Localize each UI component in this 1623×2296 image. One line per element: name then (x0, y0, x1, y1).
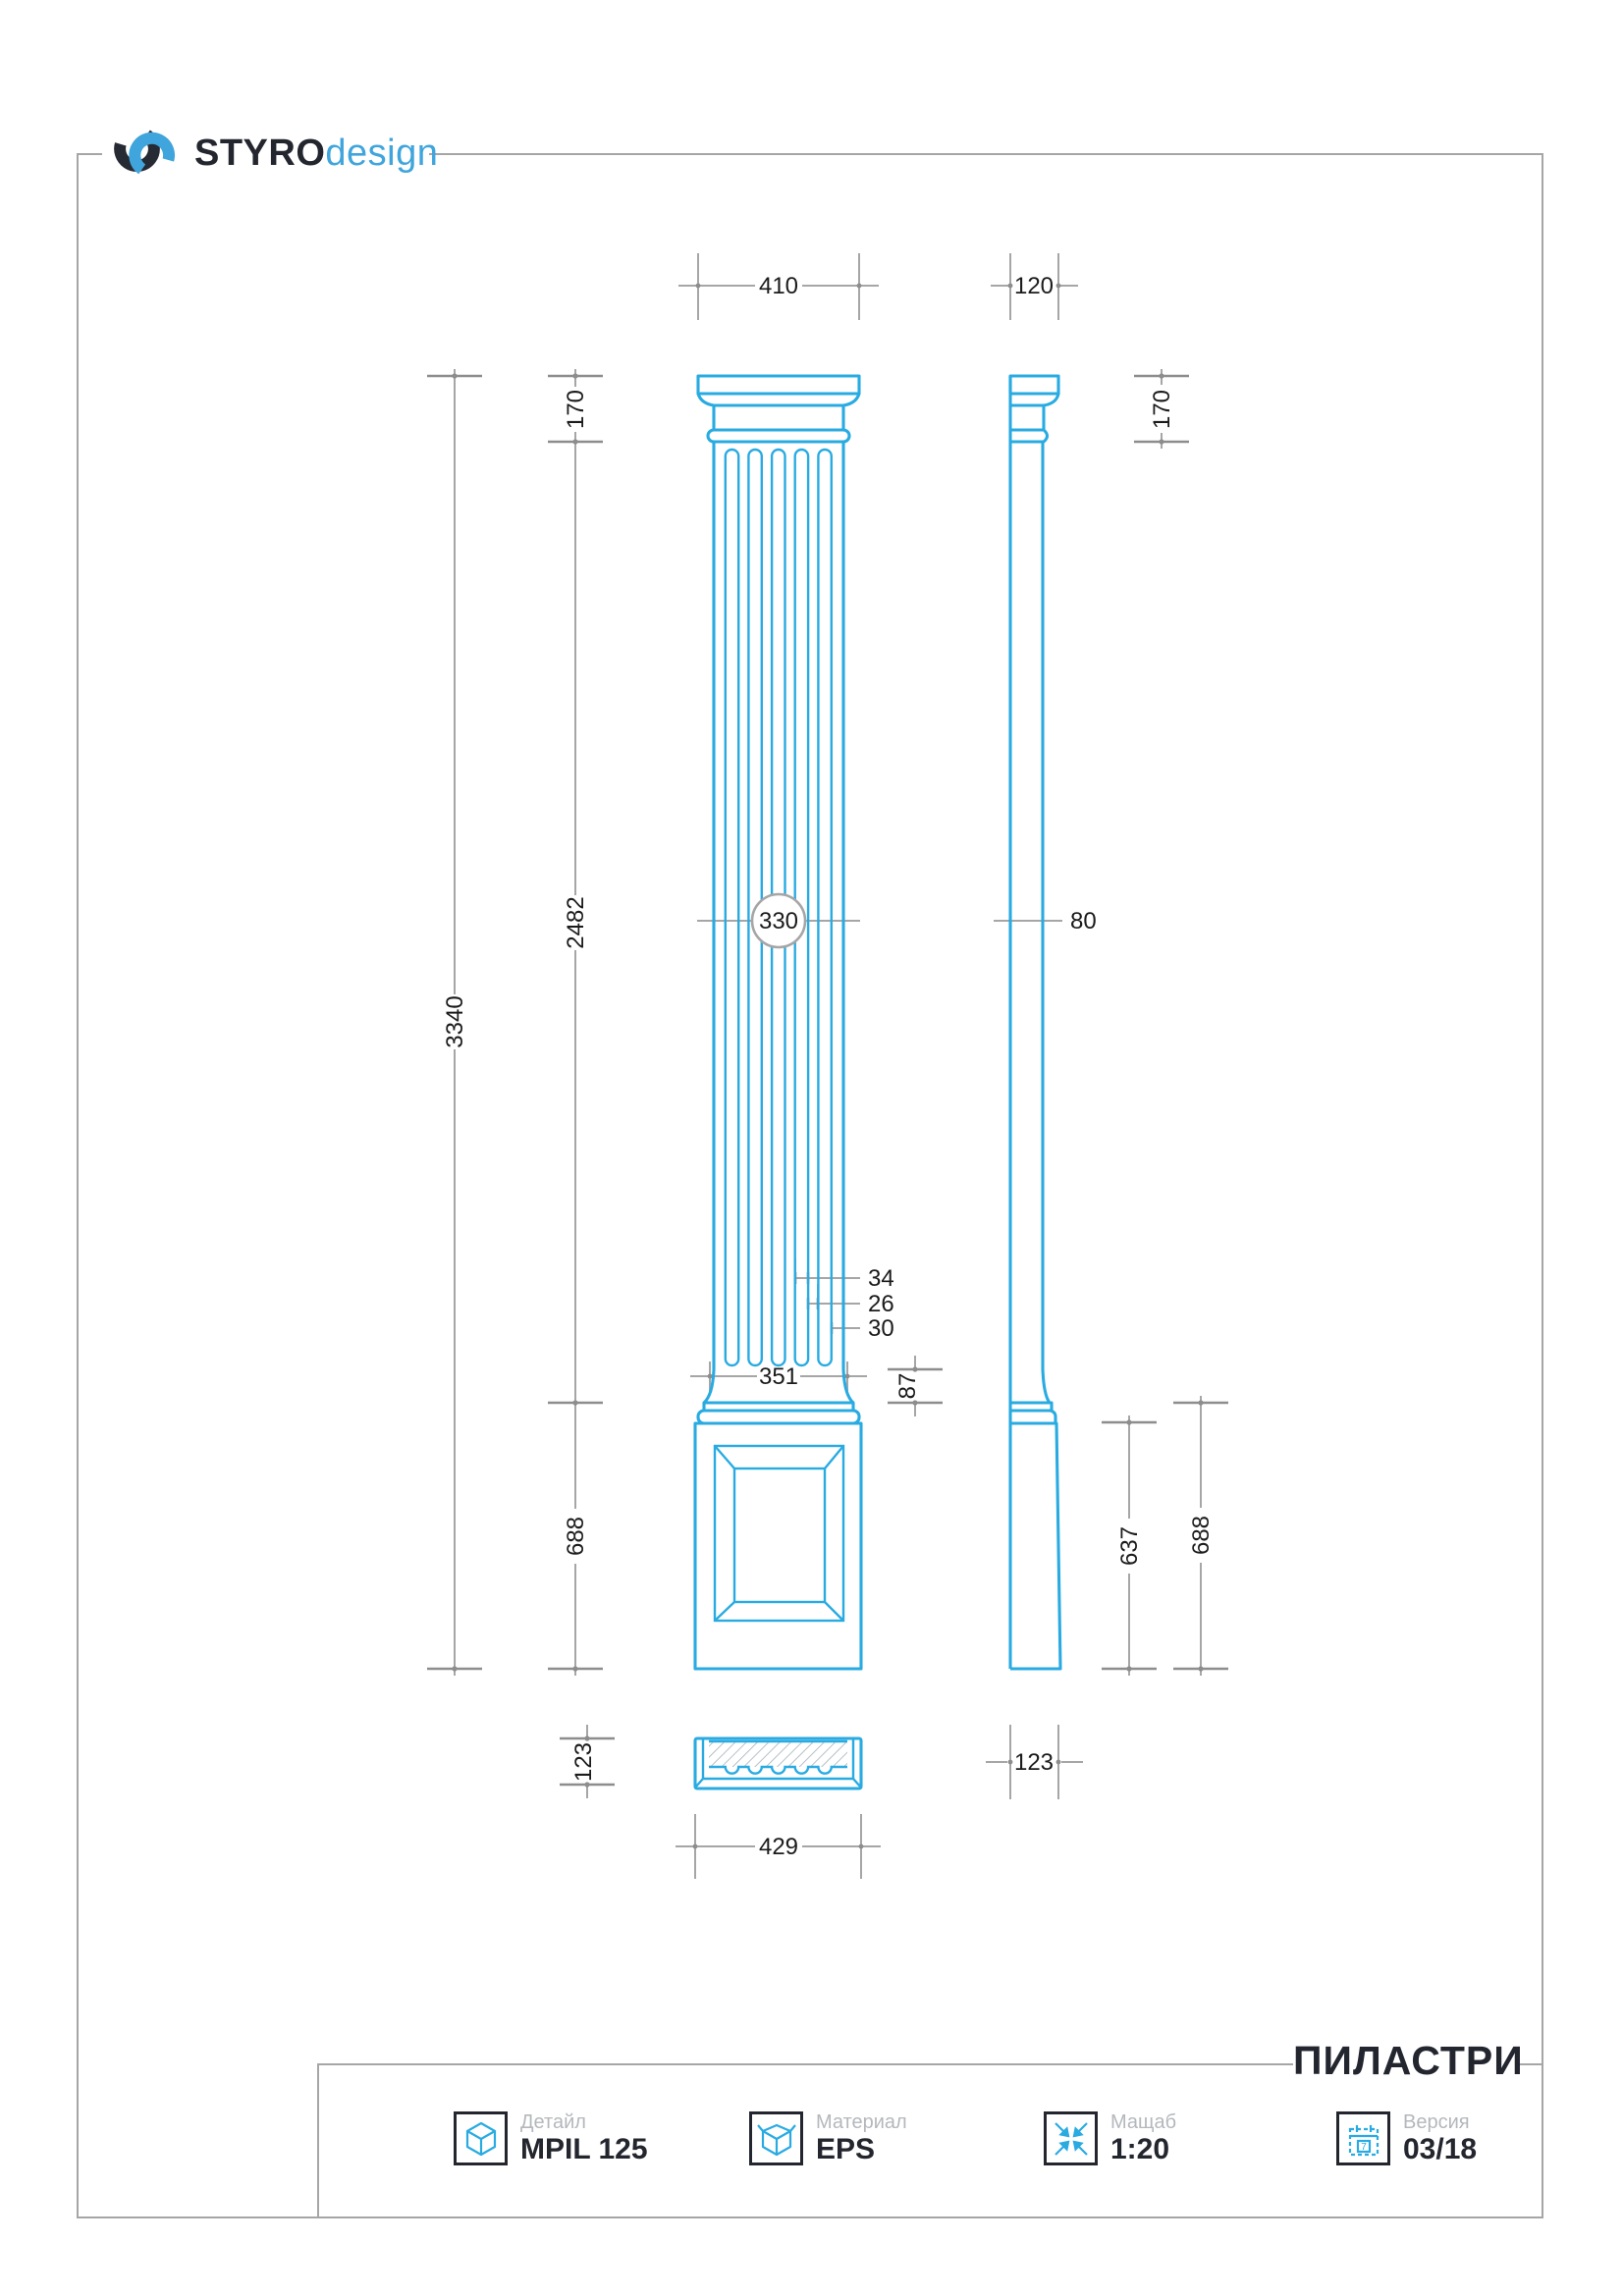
dim-text-410: 410 (759, 273, 798, 299)
detail-label: Детайл (520, 2111, 648, 2134)
dim-text-123-side: 123 (1014, 1749, 1054, 1776)
dim-text-351: 351 (759, 1363, 798, 1390)
dim-side-shaft-depth (994, 914, 1062, 928)
side-view (1010, 376, 1060, 1669)
dim-text-3340: 3340 (442, 995, 468, 1047)
side-pedestal (1010, 1423, 1060, 1669)
dim-text-34: 34 (868, 1265, 894, 1292)
side-apophyge (1043, 1369, 1050, 1403)
dim-text-170-front: 170 (563, 390, 589, 429)
side-capital-abacus (1010, 376, 1058, 394)
front-capital-cornice (698, 394, 859, 405)
dim-text-637: 637 (1116, 1526, 1143, 1566)
material-icon-box (749, 2111, 803, 2165)
calendar-digit: 7 (1361, 2142, 1367, 2153)
drawing-sheet: STYROdesign (0, 0, 1623, 2296)
dim-text-123-front: 123 (570, 1742, 597, 1782)
titleblock-item-version: 7 Версия 03/18 (1336, 2111, 1477, 2165)
version-icon-box: 7 (1336, 2111, 1390, 2165)
scale-icon-box (1044, 2111, 1098, 2165)
dim-text-2482: 2482 (563, 896, 589, 948)
scale-value: 1:20 (1110, 2134, 1176, 2165)
scale-arrows-icon (1050, 2117, 1093, 2161)
material-value: EPS (816, 2134, 907, 2165)
front-view (695, 376, 861, 1789)
front-capital-abacus (698, 376, 859, 394)
dim-text-80: 80 (1070, 908, 1097, 934)
detail-icon-box (454, 2111, 508, 2165)
dim-text-330: 330 (759, 908, 798, 934)
detail-value: MPIL 125 (520, 2134, 648, 2165)
dim-flute-leaders (795, 1258, 860, 1334)
dim-text-170-side: 170 (1149, 390, 1175, 429)
front-capital-neck (714, 405, 843, 430)
sheet-title: ПИЛАСТРИ (1293, 2038, 1515, 2084)
calendar-icon: 7 (1342, 2117, 1385, 2161)
pilaster-drawing: 330 410 120 170 2482 688 3340 34 26 30 3… (0, 0, 1623, 2296)
section-hatch (709, 1741, 847, 1767)
front-plinth-section (695, 1738, 861, 1789)
open-box-icon (755, 2117, 798, 2161)
balloon-shaft-width: 330 (752, 894, 805, 947)
front-capital-astragal (708, 430, 849, 442)
side-base-moldings (1010, 1403, 1055, 1423)
front-base-torus (698, 1411, 859, 1423)
dim-text-429: 429 (759, 1834, 798, 1860)
titleblock-item-material: Материал EPS (749, 2111, 907, 2165)
front-pedestal (695, 1423, 861, 1669)
titleblock-top-border-left (317, 2063, 1293, 2065)
scale-label: Мащаб (1110, 2111, 1176, 2134)
titleblock-item-detail: Детайл MPIL 125 (454, 2111, 648, 2165)
dim-text-30: 30 (868, 1315, 894, 1342)
dim-text-26: 26 (868, 1291, 894, 1317)
titleblock-left-border (317, 2063, 319, 2218)
titleblock-item-scale: Мащаб 1:20 (1044, 2111, 1176, 2165)
side-capital-astragal (1010, 430, 1048, 442)
material-label: Материал (816, 2111, 907, 2134)
version-label: Версия (1403, 2111, 1477, 2134)
dim-text-120: 120 (1014, 273, 1054, 299)
dim-text-87: 87 (894, 1373, 921, 1400)
dim-text-688-front: 688 (563, 1517, 589, 1556)
dim-front-stack (548, 369, 603, 1676)
side-capital-cornice (1010, 394, 1058, 430)
dim-text-688-side: 688 (1188, 1516, 1215, 1555)
version-value: 03/18 (1403, 2134, 1477, 2165)
cube-icon (460, 2117, 503, 2161)
